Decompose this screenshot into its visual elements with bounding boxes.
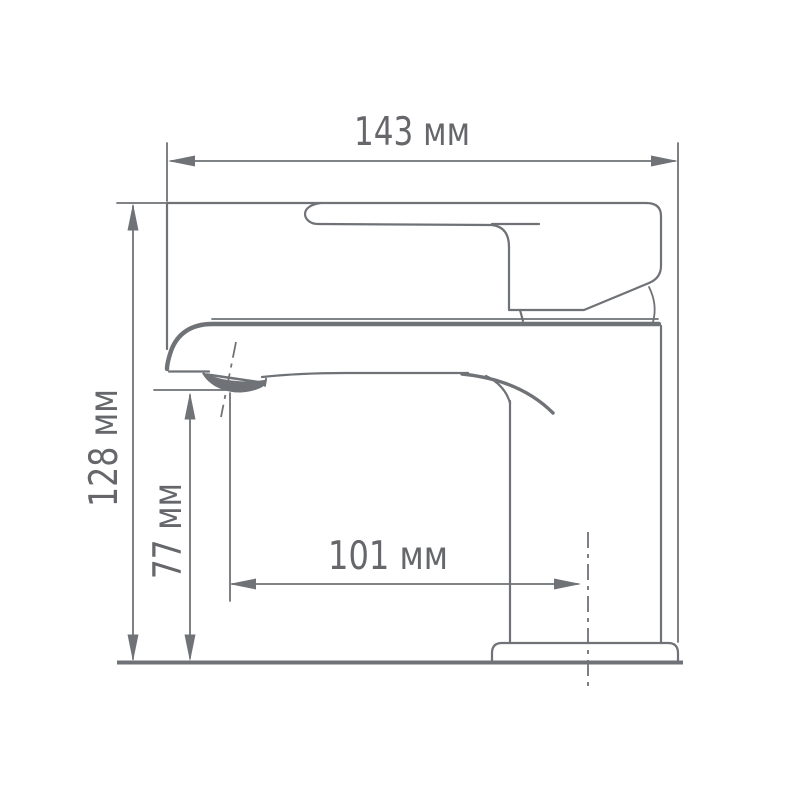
handle-side-arc — [649, 287, 655, 322]
arrowhead-up — [128, 204, 139, 231]
dimension-label-spout-height: 77 мм — [146, 483, 191, 579]
technical-drawing: 143 мм 128 мм 77 мм 101 мм — [0, 0, 800, 800]
arrowhead-right — [554, 579, 581, 590]
dimension-spout-reach: 101 мм — [229, 393, 581, 601]
dimension-overall-height: 128 мм — [82, 203, 171, 662]
dimension-label-overall-length: 143 мм — [354, 110, 470, 155]
arrowhead-left — [168, 156, 195, 167]
aerator-lip — [265, 379, 266, 387]
dimension-spout-height: 77 мм — [146, 390, 226, 662]
arrowhead-left — [229, 579, 256, 590]
base-flange — [492, 643, 678, 661]
dimension-label-spout-reach: 101 мм — [328, 534, 448, 579]
arrowhead-down — [128, 635, 139, 662]
spout-plate-front-band — [167, 324, 659, 369]
arrowhead-right — [651, 156, 678, 167]
arrowhead-down — [185, 635, 196, 662]
spout-underside-sweep — [462, 374, 553, 413]
faucet-body-outline — [167, 203, 661, 310]
dimension-label-overall-height: 128 мм — [82, 389, 127, 507]
faucet-outline — [117, 203, 683, 692]
arrowhead-up — [185, 393, 196, 420]
spout-underside-right — [262, 373, 468, 377]
drawing-canvas: 143 мм 128 мм 77 мм 101 мм — [0, 0, 800, 800]
